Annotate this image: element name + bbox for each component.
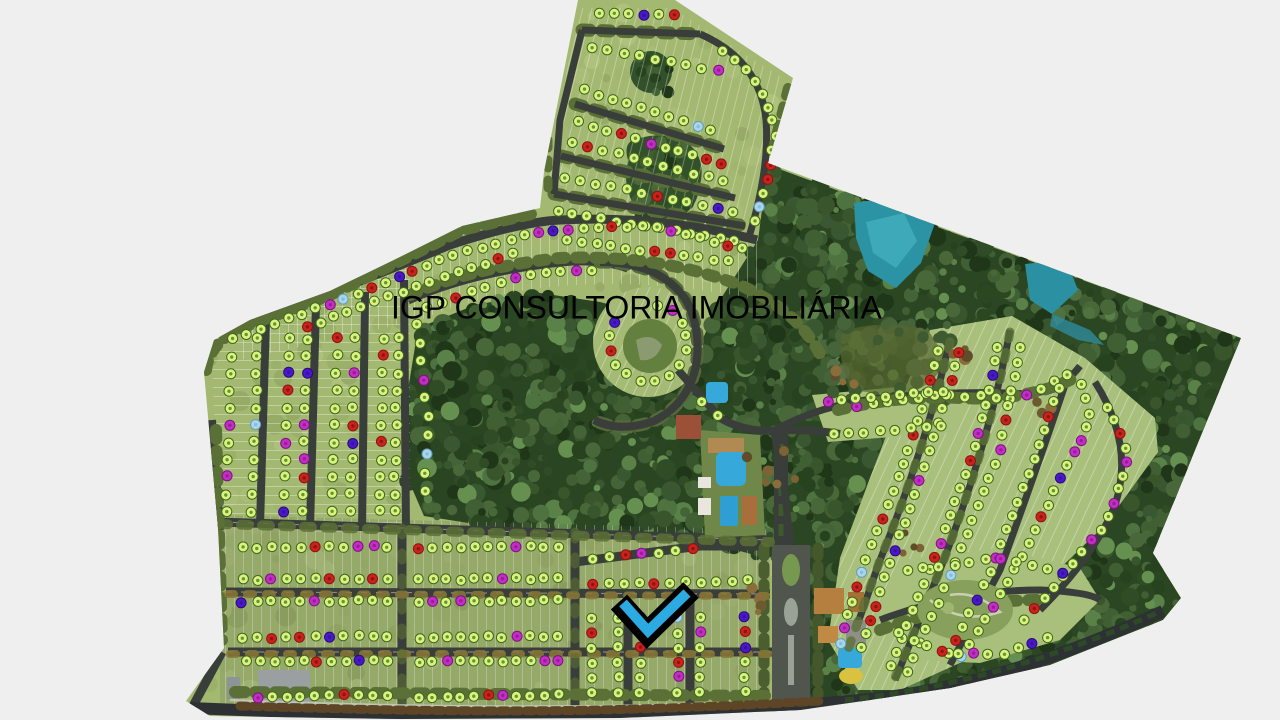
svg-text:IGP CONSULTORIA IMOBILIÁRIA: IGP CONSULTORIA IMOBILIÁRIA: [391, 290, 882, 326]
